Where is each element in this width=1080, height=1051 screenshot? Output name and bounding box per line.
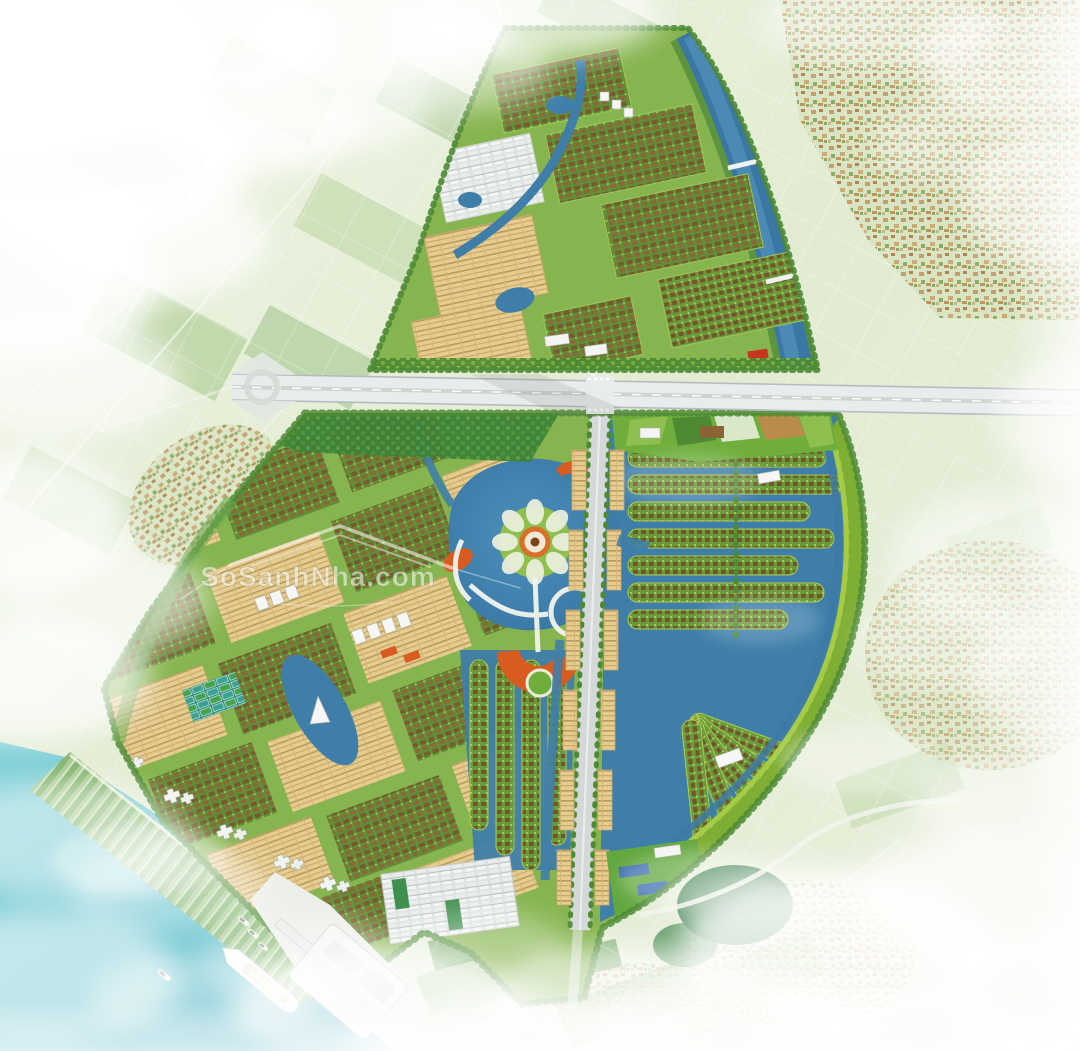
plaza-lawn-circle bbox=[527, 670, 553, 696]
flower-island bbox=[492, 499, 578, 585]
right-edge-haze bbox=[1010, 0, 1080, 1051]
watermark-text: SoSanhNha.com bbox=[200, 561, 435, 592]
aerial-masterplan-rendering: SoSanhNha.com bbox=[0, 0, 1080, 1051]
bottom-edge-haze bbox=[0, 1001, 1080, 1051]
